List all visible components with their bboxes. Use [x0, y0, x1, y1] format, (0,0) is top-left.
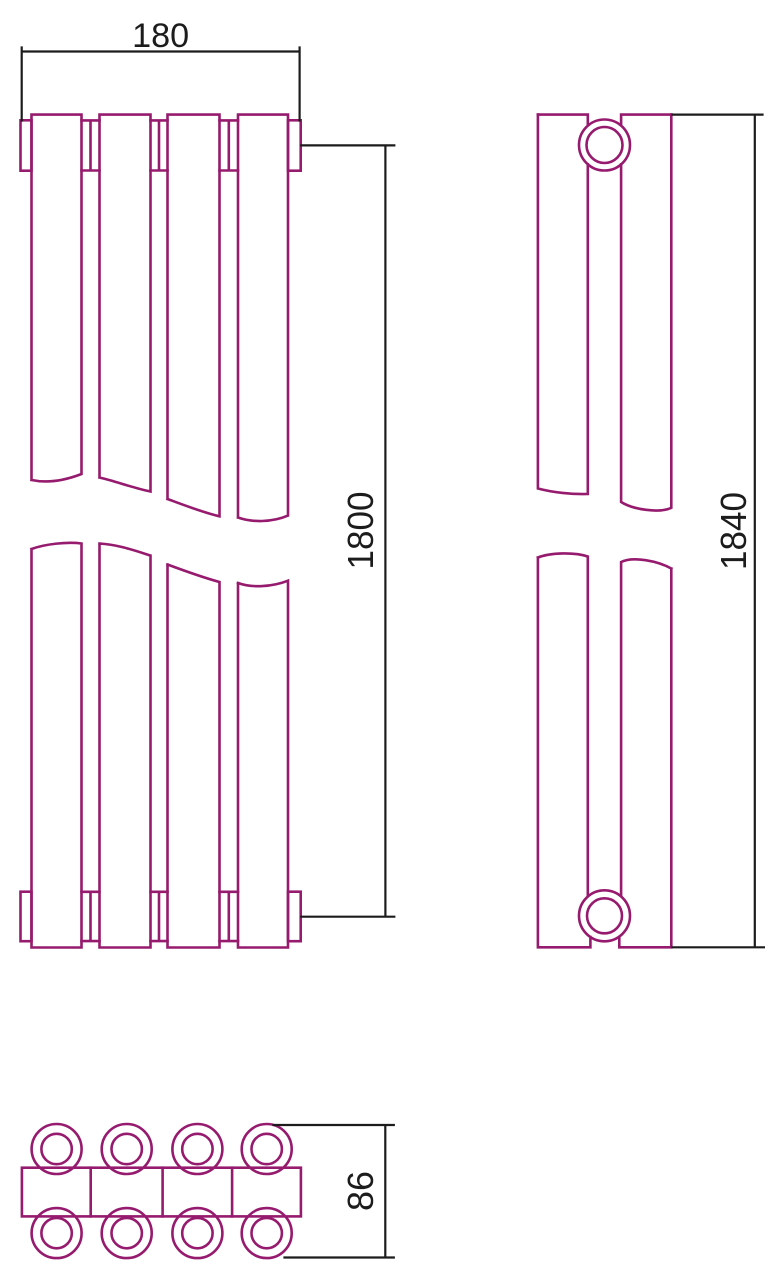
svg-text:180: 180	[132, 17, 189, 55]
svg-text:1800: 1800	[340, 492, 381, 570]
svg-text:86: 86	[340, 1171, 381, 1211]
svg-text:1840: 1840	[713, 492, 754, 570]
